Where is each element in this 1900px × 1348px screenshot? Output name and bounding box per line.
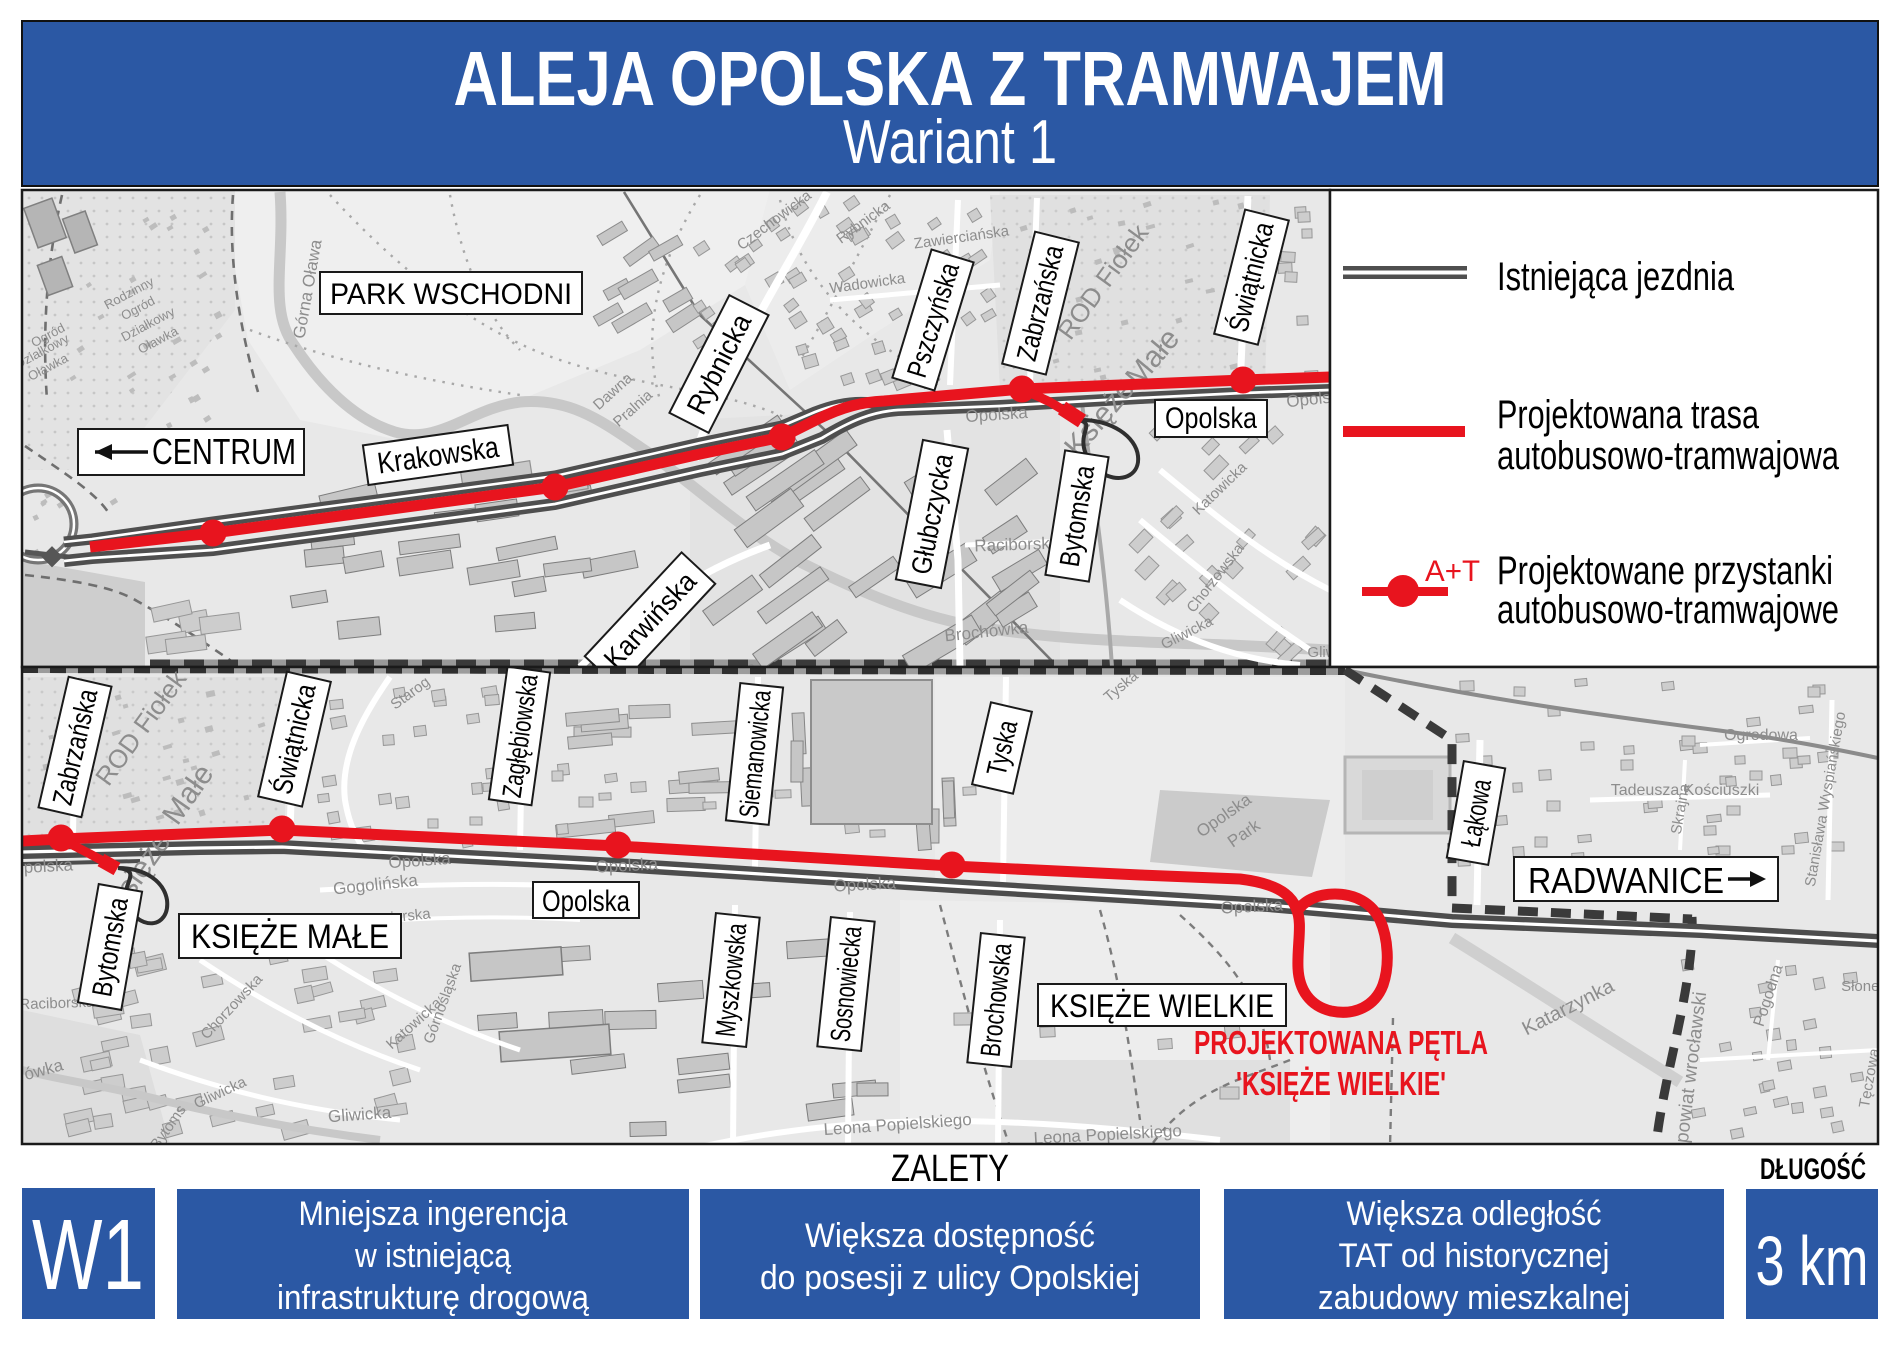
svg-text:Raciborska: Raciborska: [974, 534, 1060, 556]
svg-text:do posesji z ulicy Opolskiej: do posesji z ulicy Opolskiej: [760, 1259, 1140, 1297]
svg-text:TAT od historycznej: TAT od historycznej: [1339, 1237, 1610, 1275]
svg-text:RADWANICE: RADWANICE: [1528, 860, 1724, 901]
svg-text:Projektowana trasa: Projektowana trasa: [1497, 393, 1760, 437]
svg-text:A+T: A+T: [1425, 555, 1480, 588]
svg-text:Większa odległość: Większa odległość: [1347, 1195, 1602, 1233]
svg-text:autobusowo-tramwajowa: autobusowo-tramwajowa: [1497, 434, 1840, 478]
svg-text:Opolska: Opolska: [1220, 895, 1284, 917]
svg-text:zabudowy mieszkalnej: zabudowy mieszkalnej: [1318, 1279, 1630, 1317]
svg-text:w istniejącą: w istniejącą: [354, 1237, 511, 1275]
svg-text:ZALETY: ZALETY: [891, 1148, 1009, 1190]
svg-text:CENTRUM: CENTRUM: [152, 431, 296, 472]
svg-text:Opolska: Opolska: [595, 854, 659, 876]
svg-text:infrastrukturę drogową: infrastrukturę drogową: [277, 1279, 589, 1317]
svg-text:Projektowane przystanki: Projektowane przystanki: [1497, 549, 1833, 593]
svg-text:Większa dostępność: Większa dostępność: [805, 1217, 1095, 1255]
svg-text:Wariant 1: Wariant 1: [843, 108, 1057, 177]
svg-text:DŁUGOŚĆ: DŁUGOŚĆ: [1760, 1152, 1866, 1186]
svg-text:Istniejąca jezdnia: Istniejąca jezdnia: [1497, 255, 1735, 299]
svg-text:Opolska: Opolska: [1165, 402, 1257, 435]
svg-text:KSIĘŻE MAŁE: KSIĘŻE MAŁE: [191, 918, 389, 956]
svg-text:W1: W1: [32, 1199, 144, 1311]
svg-text:PARK WSCHODNI: PARK WSCHODNI: [330, 278, 572, 311]
svg-text:'KSIĘŻE WIELKIE': 'KSIĘŻE WIELKIE': [1236, 1065, 1446, 1102]
svg-text:KSIĘŻE WIELKIE: KSIĘŻE WIELKIE: [1050, 988, 1274, 1024]
svg-text:Ogrodowa: Ogrodowa: [1724, 727, 1798, 744]
svg-text:Opolska: Opolska: [833, 873, 897, 895]
svg-text:Opolska: Opolska: [542, 885, 630, 918]
svg-text:Mniejsza ingerencja: Mniejsza ingerencja: [299, 1195, 568, 1233]
svg-text:autobusowo-tramwajowe: autobusowo-tramwajowe: [1497, 588, 1839, 632]
svg-text:PROJEKTOWANA PĘTLA: PROJEKTOWANA PĘTLA: [1194, 1024, 1488, 1061]
svg-text:3 km: 3 km: [1756, 1222, 1869, 1300]
